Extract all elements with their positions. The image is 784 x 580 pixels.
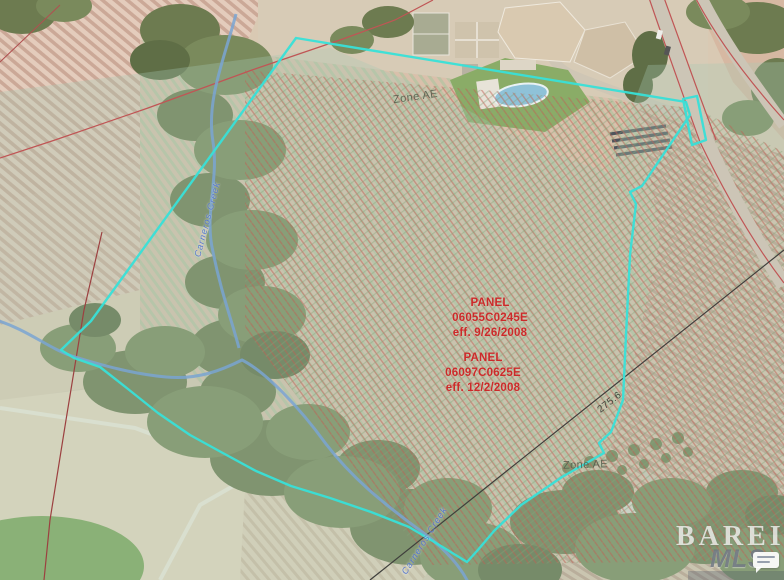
comment-icon (753, 552, 779, 568)
map-canvas (0, 0, 784, 580)
watermark-band (688, 571, 784, 580)
aerial-flood-map[interactable]: Zone AE Zone AE PANEL 06055C0245E eff. 9… (0, 0, 784, 580)
